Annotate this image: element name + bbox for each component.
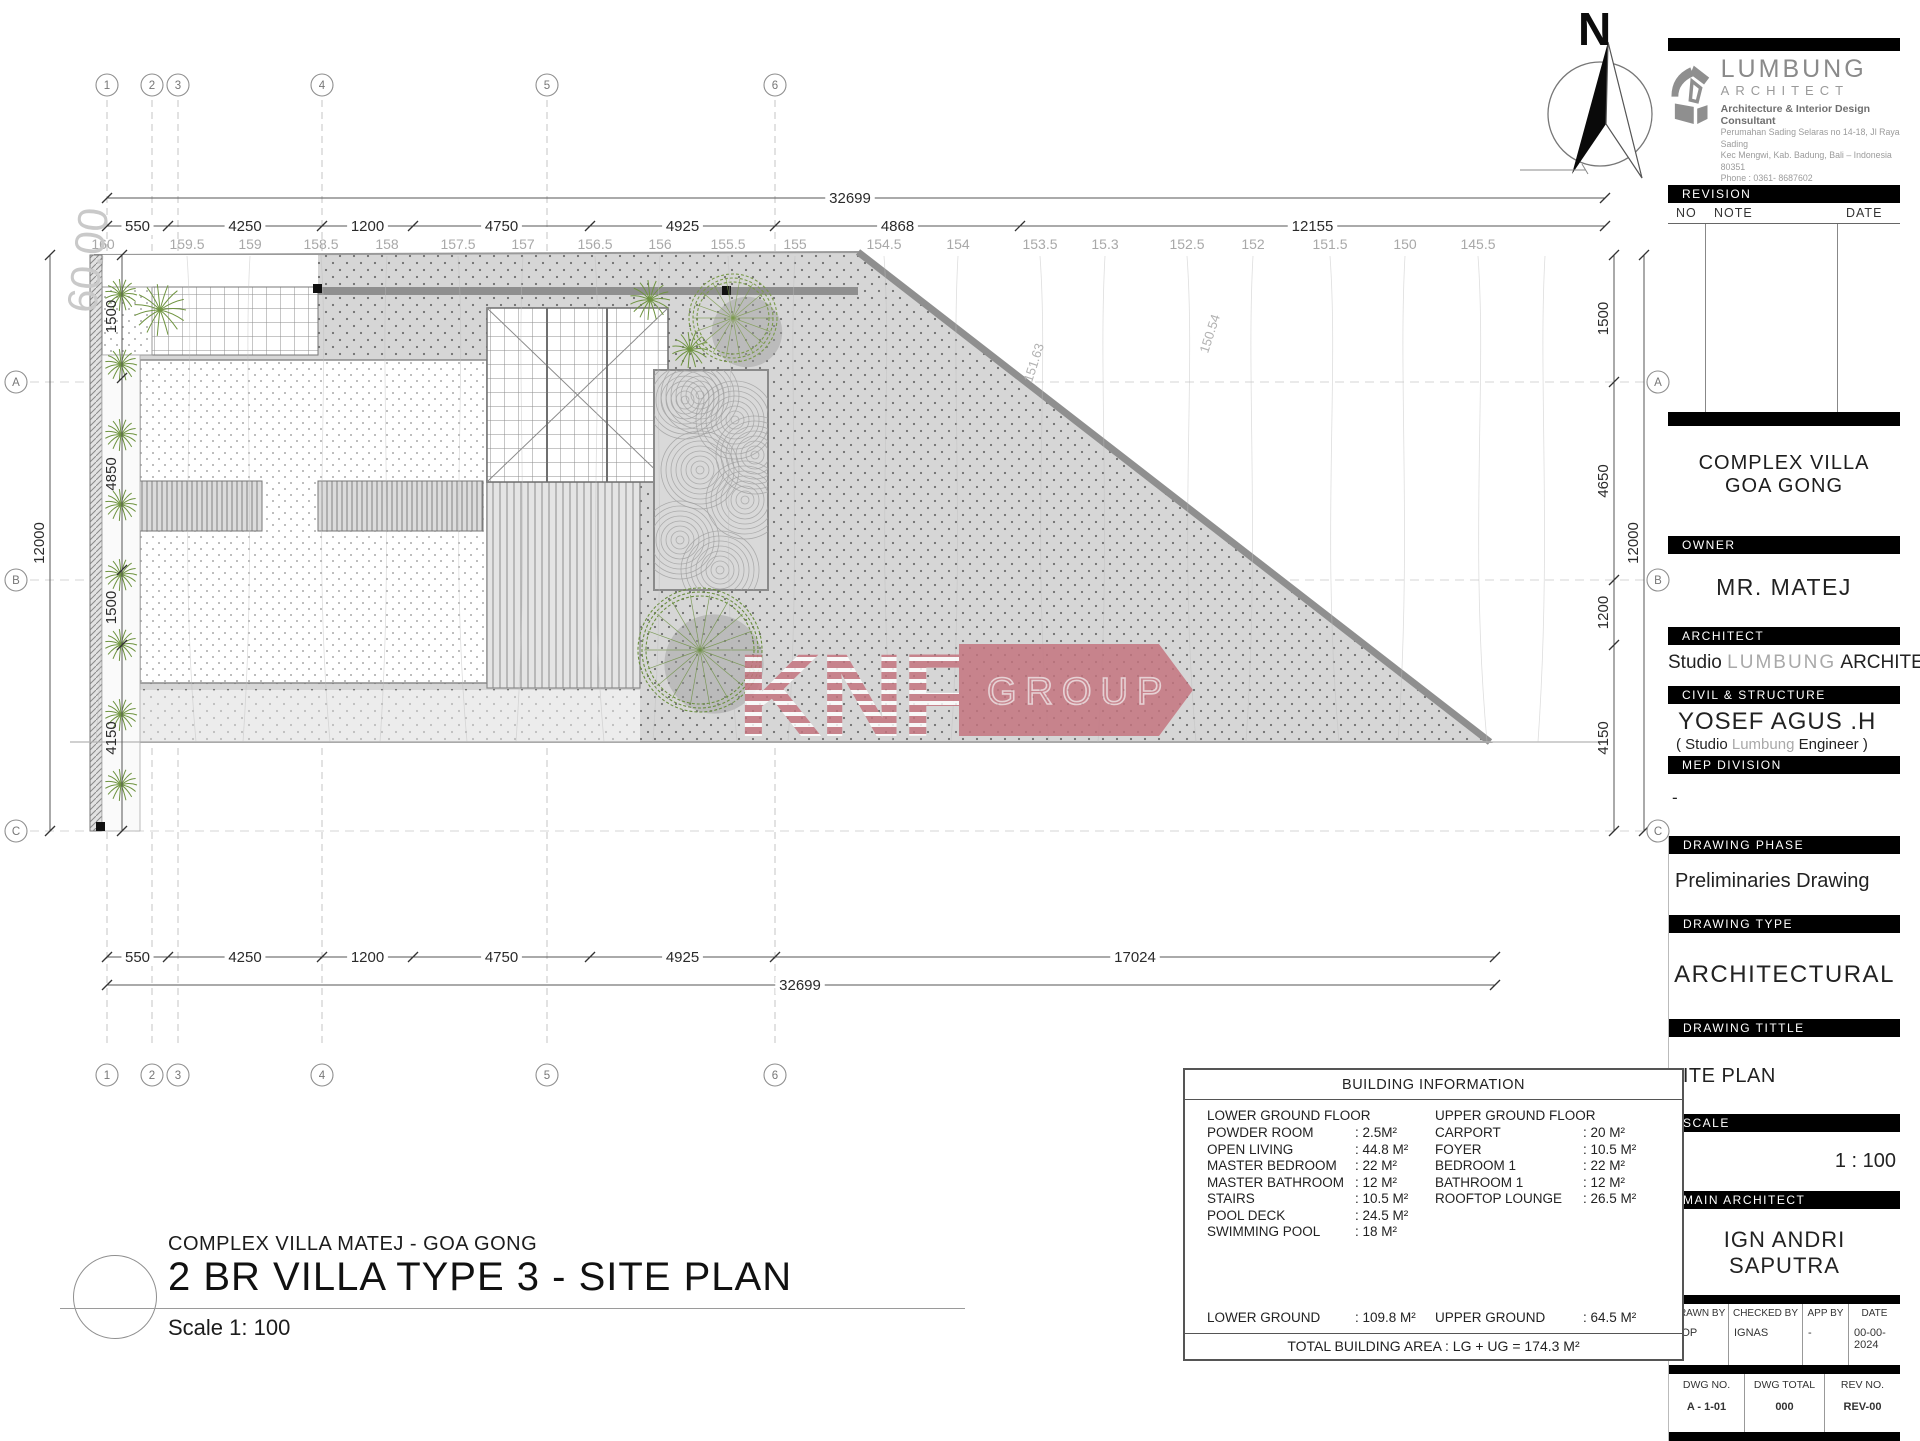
- app-by-label: APP BY: [1803, 1304, 1849, 1323]
- project-name-line1: COMPLEX VILLA: [1668, 452, 1900, 475]
- svg-text:4250: 4250: [228, 218, 261, 235]
- upper-ground-column: UPPER GROUND FLOOR CARPORT: 20 M²FOYER: …: [1435, 1108, 1663, 1241]
- svg-text:4750: 4750: [485, 218, 518, 235]
- svg-text:15.3: 15.3: [1091, 236, 1118, 252]
- svg-text:A: A: [12, 377, 20, 389]
- svg-text:158.5: 158.5: [303, 236, 338, 252]
- revision-table-body: [1668, 223, 1900, 412]
- rev-no-value: REV-00: [1825, 1396, 1900, 1432]
- watermark-banner-label: GROUP: [987, 671, 1171, 713]
- area-totals-row: LOWER GROUND: 109.8 M²UPPER GROUND: 64.5…: [1185, 1309, 1704, 1327]
- owner-value: MR. MATEJ: [1668, 574, 1900, 601]
- dimension-label: 4150: [103, 721, 120, 754]
- svg-text:159: 159: [238, 236, 262, 252]
- logo-top-bar: [1668, 38, 1900, 51]
- dwg-table: DWG NO. DWG TOTAL REV NO. A - 1-01 000 R…: [1669, 1374, 1900, 1432]
- svg-text:159.5: 159.5: [169, 236, 204, 252]
- date-label: DATE: [1849, 1304, 1900, 1323]
- drawing-sheet: { "north": {"label": "N"}, "logo": { "na…: [0, 0, 1920, 1357]
- logo-subname: ARCHITECT: [1721, 83, 1900, 98]
- svg-text:4750: 4750: [485, 949, 518, 966]
- main-architect-label: MAIN ARCHITECT: [1669, 1191, 1900, 1209]
- svg-text:4250: 4250: [228, 949, 261, 966]
- divider-bar: [1669, 1432, 1900, 1441]
- lower-ground-header: LOWER GROUND FLOOR: [1207, 1108, 1435, 1123]
- svg-text:2: 2: [149, 80, 155, 92]
- svg-text:155: 155: [783, 236, 807, 252]
- svg-text:3: 3: [175, 1070, 181, 1082]
- svg-text:155.5: 155.5: [710, 236, 745, 252]
- title-block-column: REVISION NO NOTE DATE COMPLEX VILLA GOA …: [1668, 185, 1900, 1441]
- svg-text:4925: 4925: [666, 218, 699, 235]
- svg-text:150.54: 150.54: [1196, 312, 1223, 354]
- drawing-phase-label: DRAWING PHASE: [1669, 836, 1900, 854]
- lumbung-logo-icon: [1668, 57, 1713, 131]
- svg-text:4868: 4868: [881, 218, 914, 235]
- site-plan-drawing: 3269955042501200475049254868121555504250…: [0, 0, 1700, 1130]
- svg-text:1: 1: [104, 80, 110, 92]
- watermark: KNF GROUP: [735, 628, 1215, 758]
- app-by-value: -: [1803, 1323, 1849, 1365]
- area-row: UPPER GROUND: 64.5 M²: [1435, 1309, 1663, 1327]
- dimension-label: 1500: [103, 591, 120, 624]
- building-information-title: BUILDING INFORMATION: [1185, 1070, 1682, 1100]
- date-value: 00-00-2024: [1849, 1323, 1900, 1365]
- mep-division-label: MEP DIVISION: [1668, 756, 1900, 774]
- skylight-panel: [487, 308, 668, 482]
- svg-text:32699: 32699: [829, 190, 871, 207]
- svg-text:154: 154: [946, 236, 970, 252]
- svg-text:32699: 32699: [779, 977, 821, 994]
- architect-label: ARCHITECT: [1668, 627, 1900, 645]
- sheet-title: 2 BR VILLA TYPE 3 - SITE PLAN: [168, 1255, 792, 1300]
- logo-address2: Kec Mengwi, Kab. Badung, Bali – Indonesi…: [1721, 150, 1900, 173]
- drawing-type-label: DRAWING TYPE: [1669, 915, 1900, 933]
- svg-text:550: 550: [125, 949, 150, 966]
- area-row: POOL DECK: 24.5 M²: [1207, 1208, 1435, 1225]
- pergola-grid-roof: [152, 287, 318, 355]
- svg-text:4: 4: [319, 1070, 326, 1082]
- dimension-label: 12000: [31, 522, 48, 564]
- area-row: LOWER GROUND: 109.8 M²: [1207, 1309, 1435, 1327]
- contour-labels: 160159.5159158.5158157.5157156.5156155.5…: [91, 236, 1495, 252]
- dimension-label: 4850: [103, 457, 120, 490]
- svg-text:152: 152: [1241, 236, 1265, 252]
- checked-by-value: IGNAS: [1729, 1323, 1803, 1365]
- upper-ground-header: UPPER GROUND FLOOR: [1435, 1108, 1663, 1123]
- svg-text:153.5: 153.5: [1022, 236, 1057, 252]
- area-row: OPEN LIVING: 44.8 M²: [1207, 1142, 1435, 1159]
- svg-text:B: B: [12, 575, 20, 587]
- sheet-project-name: COMPLEX VILLA MATEJ - GOA GONG: [168, 1233, 537, 1256]
- svg-text:6: 6: [772, 80, 778, 92]
- revision-col-no: NO: [1668, 203, 1706, 223]
- area-row: STAIRS: 10.5 M²: [1207, 1191, 1435, 1208]
- main-architect-value: IGN ANDRI SAPUTRA: [1669, 1227, 1900, 1279]
- dimension-label: 12000: [1625, 522, 1642, 564]
- pool-deck: [487, 482, 640, 688]
- svg-text:12155: 12155: [1292, 218, 1334, 235]
- svg-text:156.5: 156.5: [577, 236, 612, 252]
- drawing-phase-value: Preliminaries Drawing: [1669, 870, 1900, 893]
- area-row: FOYER: 10.5 M²: [1435, 1142, 1663, 1159]
- svg-text:157: 157: [511, 236, 535, 252]
- revision-header: REVISION: [1668, 185, 1900, 203]
- svg-text:5: 5: [544, 1070, 550, 1082]
- watermark-letters: KNF: [737, 630, 971, 758]
- revision-table-head: NO NOTE DATE: [1668, 203, 1900, 223]
- checked-by-label: CHECKED BY: [1729, 1304, 1803, 1323]
- civil-structure-label: CIVIL & STRUCTURE: [1668, 686, 1900, 704]
- logo-phone: Phone : 0361- 8687602: [1721, 173, 1900, 185]
- dimension-label: 4650: [1595, 464, 1612, 497]
- svg-text:157.5: 157.5: [440, 236, 475, 252]
- dwg-total-value: 000: [1745, 1396, 1825, 1432]
- divider-bar: [1668, 412, 1900, 426]
- svg-text:6: 6: [772, 1070, 778, 1082]
- dwg-no-value: A - 1-01: [1669, 1396, 1745, 1432]
- logo-box: LUMBUNG ARCHITECT Architecture & Interio…: [1668, 38, 1900, 196]
- sheet-scale: Scale 1: 100: [168, 1315, 290, 1341]
- total-building-area: TOTAL BUILDING AREA : LG + UG = 174.3 M²: [1185, 1333, 1682, 1359]
- dwg-no-label: DWG NO.: [1669, 1374, 1745, 1396]
- area-row: BATHROOM 1: 12 M²: [1435, 1175, 1663, 1192]
- title-underline: [60, 1308, 965, 1309]
- north-arrow: N: [1520, 2, 1690, 182]
- area-row: MASTER BEDROOM: 22 M²: [1207, 1158, 1435, 1175]
- building-information-table: BUILDING INFORMATION LOWER GROUND FLOOR …: [1183, 1068, 1684, 1361]
- svg-text:4: 4: [319, 80, 326, 92]
- svg-text:3: 3: [175, 80, 181, 92]
- svg-text:151.63: 151.63: [1020, 341, 1047, 383]
- logo-name: LUMBUNG: [1721, 57, 1900, 82]
- dimension-label: 1500: [1595, 302, 1612, 335]
- svg-text:2: 2: [149, 1070, 155, 1082]
- divider-bar: [1669, 1365, 1900, 1374]
- drawing-title-value: SITE PLAN: [1669, 1065, 1900, 1088]
- civil-structure-sub: ( Studio Lumbung Engineer ): [1668, 736, 1900, 753]
- area-row: SWIMMING POOL: 18 M²: [1207, 1224, 1435, 1241]
- svg-text:154.5: 154.5: [866, 236, 901, 252]
- revision-col-date: DATE: [1838, 203, 1900, 223]
- mep-division-value: -: [1668, 788, 1900, 808]
- lower-ground-column: LOWER GROUND FLOOR POWDER ROOM: 2.5M²OPE…: [1207, 1108, 1435, 1241]
- svg-text:156: 156: [648, 236, 672, 252]
- svg-text:1: 1: [104, 1070, 110, 1082]
- svg-text:C: C: [12, 826, 20, 838]
- svg-text:145.5: 145.5: [1460, 236, 1495, 252]
- svg-text:150: 150: [1393, 236, 1417, 252]
- area-row: MASTER BATHROOM: 12 M²: [1207, 1175, 1435, 1192]
- owner-label: OWNER: [1668, 536, 1900, 554]
- project-name-line2: GOA GONG: [1668, 475, 1900, 498]
- area-row: BEDROOM 1: 22 M²: [1435, 1158, 1663, 1175]
- area-row: ROOFTOP LOUNGE: 26.5 M²: [1435, 1191, 1663, 1208]
- svg-text:152.5: 152.5: [1169, 236, 1204, 252]
- svg-text:5: 5: [544, 80, 550, 92]
- svg-text:17024: 17024: [1114, 949, 1156, 966]
- svg-text:C: C: [1654, 826, 1662, 838]
- svg-text:151.5: 151.5: [1312, 236, 1347, 252]
- svg-text:1200: 1200: [351, 218, 384, 235]
- area-row: CARPORT: 20 M²: [1435, 1125, 1663, 1142]
- svg-text:158: 158: [375, 236, 399, 252]
- area-row: POWDER ROOM: 2.5M²: [1207, 1125, 1435, 1142]
- svg-text:A: A: [1654, 377, 1662, 389]
- svg-text:4925: 4925: [666, 949, 699, 966]
- drawing-title-label: DRAWING TITTLE: [1669, 1019, 1900, 1037]
- svg-text:B: B: [1654, 575, 1662, 587]
- divider-bar: [1669, 1295, 1900, 1304]
- dwg-total-label: DWG TOTAL: [1745, 1374, 1825, 1396]
- svg-text:1200: 1200: [351, 949, 384, 966]
- svg-text:550: 550: [125, 218, 150, 235]
- north-label: N: [1578, 2, 1611, 56]
- scale-label: SCALE: [1669, 1114, 1900, 1132]
- logo-address1: Perumahan Sading Selaras no 14-18, Jl Ra…: [1721, 127, 1900, 150]
- revision-col-note: NOTE: [1706, 203, 1838, 223]
- logo-tagline: Architecture & Interior Design Consultan…: [1721, 103, 1900, 127]
- detail-reference-circle: [73, 1255, 157, 1339]
- roof-vent: [318, 481, 483, 531]
- architect-value: Studio LUMBUNG ARCHITECT: [1668, 652, 1900, 674]
- civil-structure-name: YOSEF AGUS .H: [1668, 708, 1900, 736]
- rev-no-label: REV NO.: [1825, 1374, 1900, 1396]
- dimension-label: 1200: [1595, 596, 1612, 629]
- scale-value: 1 : 100: [1669, 1150, 1900, 1173]
- drawing-type-value: ARCHITECTURAL: [1669, 961, 1900, 989]
- dimension-label: 4150: [1595, 721, 1612, 754]
